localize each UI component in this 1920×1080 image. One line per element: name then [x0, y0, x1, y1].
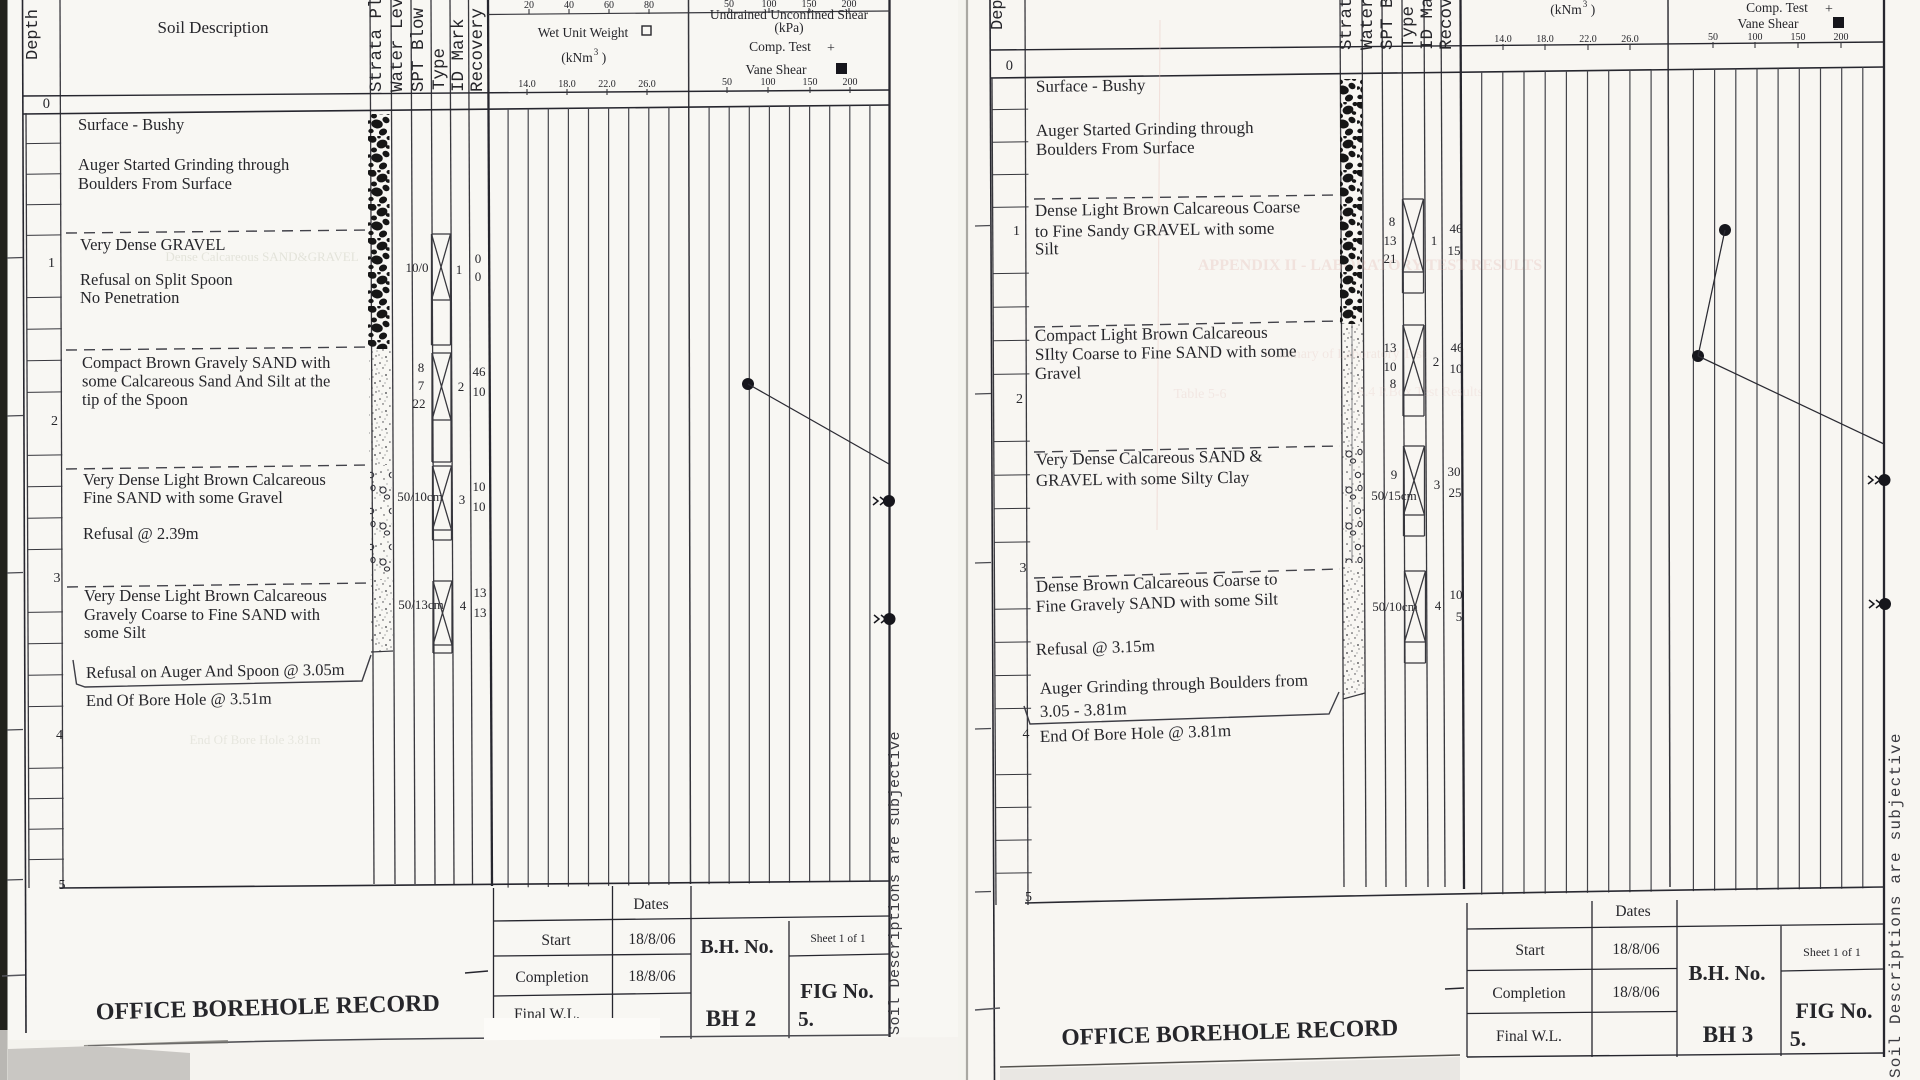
svg-text:Auger Started Grinding through: Auger Started Grinding through	[78, 155, 290, 174]
svg-text:ID Mark: ID Mark	[1418, 0, 1438, 50]
svg-text:Start: Start	[541, 932, 571, 949]
svg-text:End Of Bore Hole @ 3.51m: End Of Bore Hole @ 3.51m	[86, 689, 272, 710]
svg-text:to Fine Sandy GRAVEL with some: to Fine Sandy GRAVEL with some	[1035, 219, 1275, 241]
svg-text:SIlty Coarse to Fine SAND with: SIlty Coarse to Fine SAND with some	[1035, 341, 1297, 364]
svg-text:46: 46	[473, 364, 487, 379]
svg-text:Boulders From Surface: Boulders From Surface	[1036, 138, 1195, 159]
svg-text:Completion: Completion	[1492, 985, 1565, 1002]
svg-text:some Silt: some Silt	[84, 623, 146, 642]
svg-text:Recovery: Recovery	[468, 8, 488, 92]
svg-text:APPENDIX II - LABORATORY TEST: APPENDIX II - LABORATORY TEST RESULTS	[1198, 257, 1542, 274]
svg-text:Sheet 1 of 1: Sheet 1 of 1	[1803, 945, 1861, 959]
svg-text:3: 3	[54, 571, 61, 586]
svg-text:Strata Plot: Strata Plot	[367, 0, 387, 92]
svg-text:Very Dense Calcareous SAND &: Very Dense Calcareous SAND &	[1036, 446, 1263, 469]
svg-text:2: 2	[458, 379, 465, 394]
svg-text:Refusal on Auger And Spoon @ 3: Refusal on Auger And Spoon @ 3.05m	[86, 660, 345, 682]
svg-text:Very Dense Light Brown Calcare: Very Dense Light Brown Calcareous	[84, 586, 327, 605]
svg-text:1: 1	[1013, 224, 1020, 239]
svg-text:26.0: 26.0	[1621, 34, 1639, 45]
svg-text:5.: 5.	[1790, 1026, 1807, 1051]
svg-text:Type: Type	[430, 48, 450, 90]
svg-text:Table 5-6: Table 5-6	[1173, 387, 1226, 402]
svg-text:50: 50	[722, 77, 732, 88]
svg-text:Water Level: Water Level	[388, 0, 408, 92]
svg-text:Compact Brown Gravely SAND wit: Compact Brown Gravely SAND with	[82, 353, 331, 372]
svg-text:Depth: Depth	[989, 0, 1008, 30]
svg-text:BH 2: BH 2	[706, 1006, 756, 1031]
svg-text:some Calcareous Sand And Silt: some Calcareous Sand And Silt at the	[82, 372, 330, 391]
svg-text:+: +	[827, 41, 835, 56]
svg-text:13: 13	[474, 585, 487, 600]
svg-text:8: 8	[1389, 214, 1396, 229]
svg-text:Dates: Dates	[633, 896, 668, 913]
svg-text:FIG No.: FIG No.	[800, 979, 874, 1003]
svg-text:Depth: Depth	[24, 9, 43, 60]
svg-text:No Penetration: No Penetration	[80, 288, 179, 307]
svg-text:46: 46	[1450, 221, 1464, 236]
svg-text:Water Level: Water Level	[1358, 0, 1378, 50]
svg-text:7: 7	[418, 378, 425, 393]
svg-text:4: 4	[1023, 727, 1030, 742]
svg-text:14.0: 14.0	[518, 79, 536, 90]
svg-text:Silt: Silt	[1035, 239, 1059, 258]
svg-text:8: 8	[1390, 376, 1397, 391]
svg-text:3.05 - 3.81m: 3.05 - 3.81m	[1040, 699, 1127, 721]
svg-text:50/10cm: 50/10cm	[397, 489, 443, 504]
svg-text:0: 0	[43, 96, 50, 112]
svg-text:10/0: 10/0	[405, 260, 428, 275]
svg-text:50/10cm: 50/10cm	[1372, 599, 1418, 614]
svg-text:13: 13	[1384, 340, 1397, 355]
svg-text:22: 22	[413, 396, 426, 411]
svg-text:tip of the Spoon: tip of the Spoon	[82, 390, 188, 409]
svg-text:3: 3	[1020, 561, 1027, 576]
svg-text:1: 1	[456, 262, 463, 277]
svg-text:): )	[1591, 2, 1596, 17]
svg-text:10: 10	[473, 499, 486, 514]
svg-text:0: 0	[1006, 58, 1013, 74]
svg-text:Comp. Test: Comp. Test	[749, 39, 811, 54]
svg-text:10: 10	[473, 479, 486, 494]
svg-text:End Of Bore Hole 3.81m: End Of Bore Hole 3.81m	[189, 732, 320, 747]
svg-text:Auger Started Grinding through: Auger Started Grinding through	[1036, 118, 1254, 140]
svg-text:Dense Calcareous SAND&GRAVEL: Dense Calcareous SAND&GRAVEL	[165, 249, 358, 264]
svg-text:10: 10	[1384, 359, 1397, 374]
svg-text:13: 13	[474, 605, 487, 620]
svg-text:22.0: 22.0	[598, 79, 616, 90]
svg-text:): )	[602, 50, 607, 65]
svg-text:0: 0	[475, 251, 482, 266]
svg-text:150: 150	[803, 77, 818, 88]
svg-text:8: 8	[418, 360, 425, 375]
svg-text:Dates: Dates	[1615, 903, 1650, 920]
svg-text:(kNm: (kNm	[1550, 2, 1582, 17]
svg-text:4: 4	[1435, 598, 1442, 613]
svg-text:SPT Blow: SPT Blow	[409, 7, 429, 92]
svg-text:Recovery: Recovery	[1437, 0, 1457, 50]
svg-text:(kPa): (kPa)	[774, 20, 803, 35]
svg-text:FIG No.: FIG No.	[1796, 998, 1873, 1023]
svg-text:Gravel: Gravel	[1035, 363, 1082, 383]
svg-text:Dense Light Brown Calcareous C: Dense Light Brown Calcareous Coarse	[1035, 197, 1301, 220]
svg-text:150: 150	[1791, 32, 1806, 43]
svg-text:S.4 P.Box Test Results: S.4 P.Box Test Results	[1357, 385, 1483, 400]
svg-text:Very Dense Light Brown Calcare: Very Dense Light Brown Calcareous	[83, 470, 326, 489]
svg-text:Gravely Coarse to Fine SAND wi: Gravely Coarse to Fine SAND with	[84, 605, 321, 624]
svg-text:GRAVEL with some Silty Clay: GRAVEL with some Silty Clay	[1036, 468, 1250, 490]
svg-text:5: 5	[1456, 609, 1463, 624]
svg-text:3: 3	[594, 47, 599, 57]
svg-text:10: 10	[473, 384, 486, 399]
svg-text:18/8/06: 18/8/06	[628, 931, 676, 948]
svg-text:18.0: 18.0	[558, 79, 576, 90]
svg-text:18/8/06: 18/8/06	[1612, 941, 1660, 958]
svg-text:10: 10	[1450, 361, 1463, 376]
svg-text:Boulders From Surface: Boulders From Surface	[78, 174, 232, 193]
svg-text:22.0: 22.0	[1579, 34, 1597, 45]
svg-text:100: 100	[1748, 32, 1763, 43]
svg-text:Soil Descriptions are subjecti: Soil Descriptions are subjective	[1887, 732, 1905, 1078]
svg-text:18/8/06: 18/8/06	[1612, 984, 1660, 1001]
svg-text:2: 2	[1016, 392, 1023, 407]
svg-text:9: 9	[1391, 467, 1398, 482]
svg-text:(kNm: (kNm	[561, 50, 593, 65]
svg-text:5: 5	[59, 878, 66, 893]
svg-text:+: +	[1825, 2, 1833, 17]
svg-text:26.0: 26.0	[638, 79, 656, 90]
svg-text:Wet Unit Weight: Wet Unit Weight	[538, 25, 629, 40]
svg-text:Soil Description: Soil Description	[158, 18, 269, 37]
svg-text:Final W.L.: Final W.L.	[1496, 1028, 1562, 1045]
svg-text:10: 10	[1450, 587, 1463, 602]
svg-text:Fine SAND with some Gravel: Fine SAND with some Gravel	[83, 488, 283, 507]
svg-text:0: 0	[475, 269, 482, 284]
svg-text:Refusal @ 2.39m: Refusal @ 2.39m	[83, 524, 199, 543]
svg-text:1: 1	[48, 256, 55, 271]
svg-text:1: 1	[1431, 233, 1438, 248]
svg-text:Soil Descriptions are subjecti: Soil Descriptions are subjective	[887, 731, 904, 1035]
svg-text:15: 15	[1448, 243, 1461, 258]
svg-text:5.: 5.	[798, 1007, 814, 1031]
svg-text:Surface - Bushy: Surface - Bushy	[1036, 75, 1146, 96]
svg-text:18.0: 18.0	[1536, 34, 1554, 45]
svg-text:2: 2	[1433, 354, 1440, 369]
svg-text:3: 3	[1434, 477, 1441, 492]
svg-text:Type: Type	[1399, 6, 1419, 48]
svg-text:100: 100	[761, 77, 776, 88]
svg-text:Refusal @ 3.15m: Refusal @ 3.15m	[1036, 636, 1156, 659]
svg-text:14.0: 14.0	[1494, 34, 1512, 45]
svg-text:50: 50	[1708, 32, 1718, 43]
svg-text:2: 2	[51, 414, 58, 429]
svg-text:3: 3	[459, 492, 466, 507]
svg-text:Completion: Completion	[515, 969, 588, 986]
svg-text:BH 3: BH 3	[1703, 1022, 1753, 1047]
svg-text:Vane Shear: Vane Shear	[1737, 16, 1799, 31]
svg-text:Start: Start	[1515, 942, 1545, 959]
svg-text:B.H. No.: B.H. No.	[700, 936, 773, 958]
svg-text:46: 46	[1451, 340, 1465, 355]
svg-text:Sheet 1 of 1: Sheet 1 of 1	[810, 933, 866, 945]
svg-text:ID Mark: ID Mark	[449, 18, 469, 92]
svg-text:21: 21	[1384, 251, 1397, 266]
svg-text:200: 200	[1834, 32, 1849, 43]
svg-text:25: 25	[1449, 485, 1462, 500]
svg-text:Refusal on Split Spoon: Refusal on Split Spoon	[80, 270, 233, 289]
svg-text:3: 3	[1583, 0, 1588, 9]
svg-text:13: 13	[1384, 233, 1397, 248]
svg-text:Surface - Bushy: Surface - Bushy	[78, 115, 185, 134]
svg-text:Strata Plot: Strata Plot	[1337, 0, 1357, 50]
svg-text:Comp. Test: Comp. Test	[1746, 0, 1808, 15]
svg-text:Vane Shear: Vane Shear	[745, 62, 807, 77]
svg-text:18/8/06: 18/8/06	[628, 968, 676, 985]
svg-text:B.H. No.: B.H. No.	[1688, 961, 1765, 985]
svg-text:50/13cm: 50/13cm	[398, 597, 444, 612]
svg-text:4: 4	[56, 728, 63, 743]
svg-text:30: 30	[1448, 464, 1461, 479]
svg-text:200: 200	[843, 77, 858, 88]
svg-text:4: 4	[460, 598, 467, 613]
svg-text:SPT Blow: SPT Blow	[1378, 0, 1398, 50]
